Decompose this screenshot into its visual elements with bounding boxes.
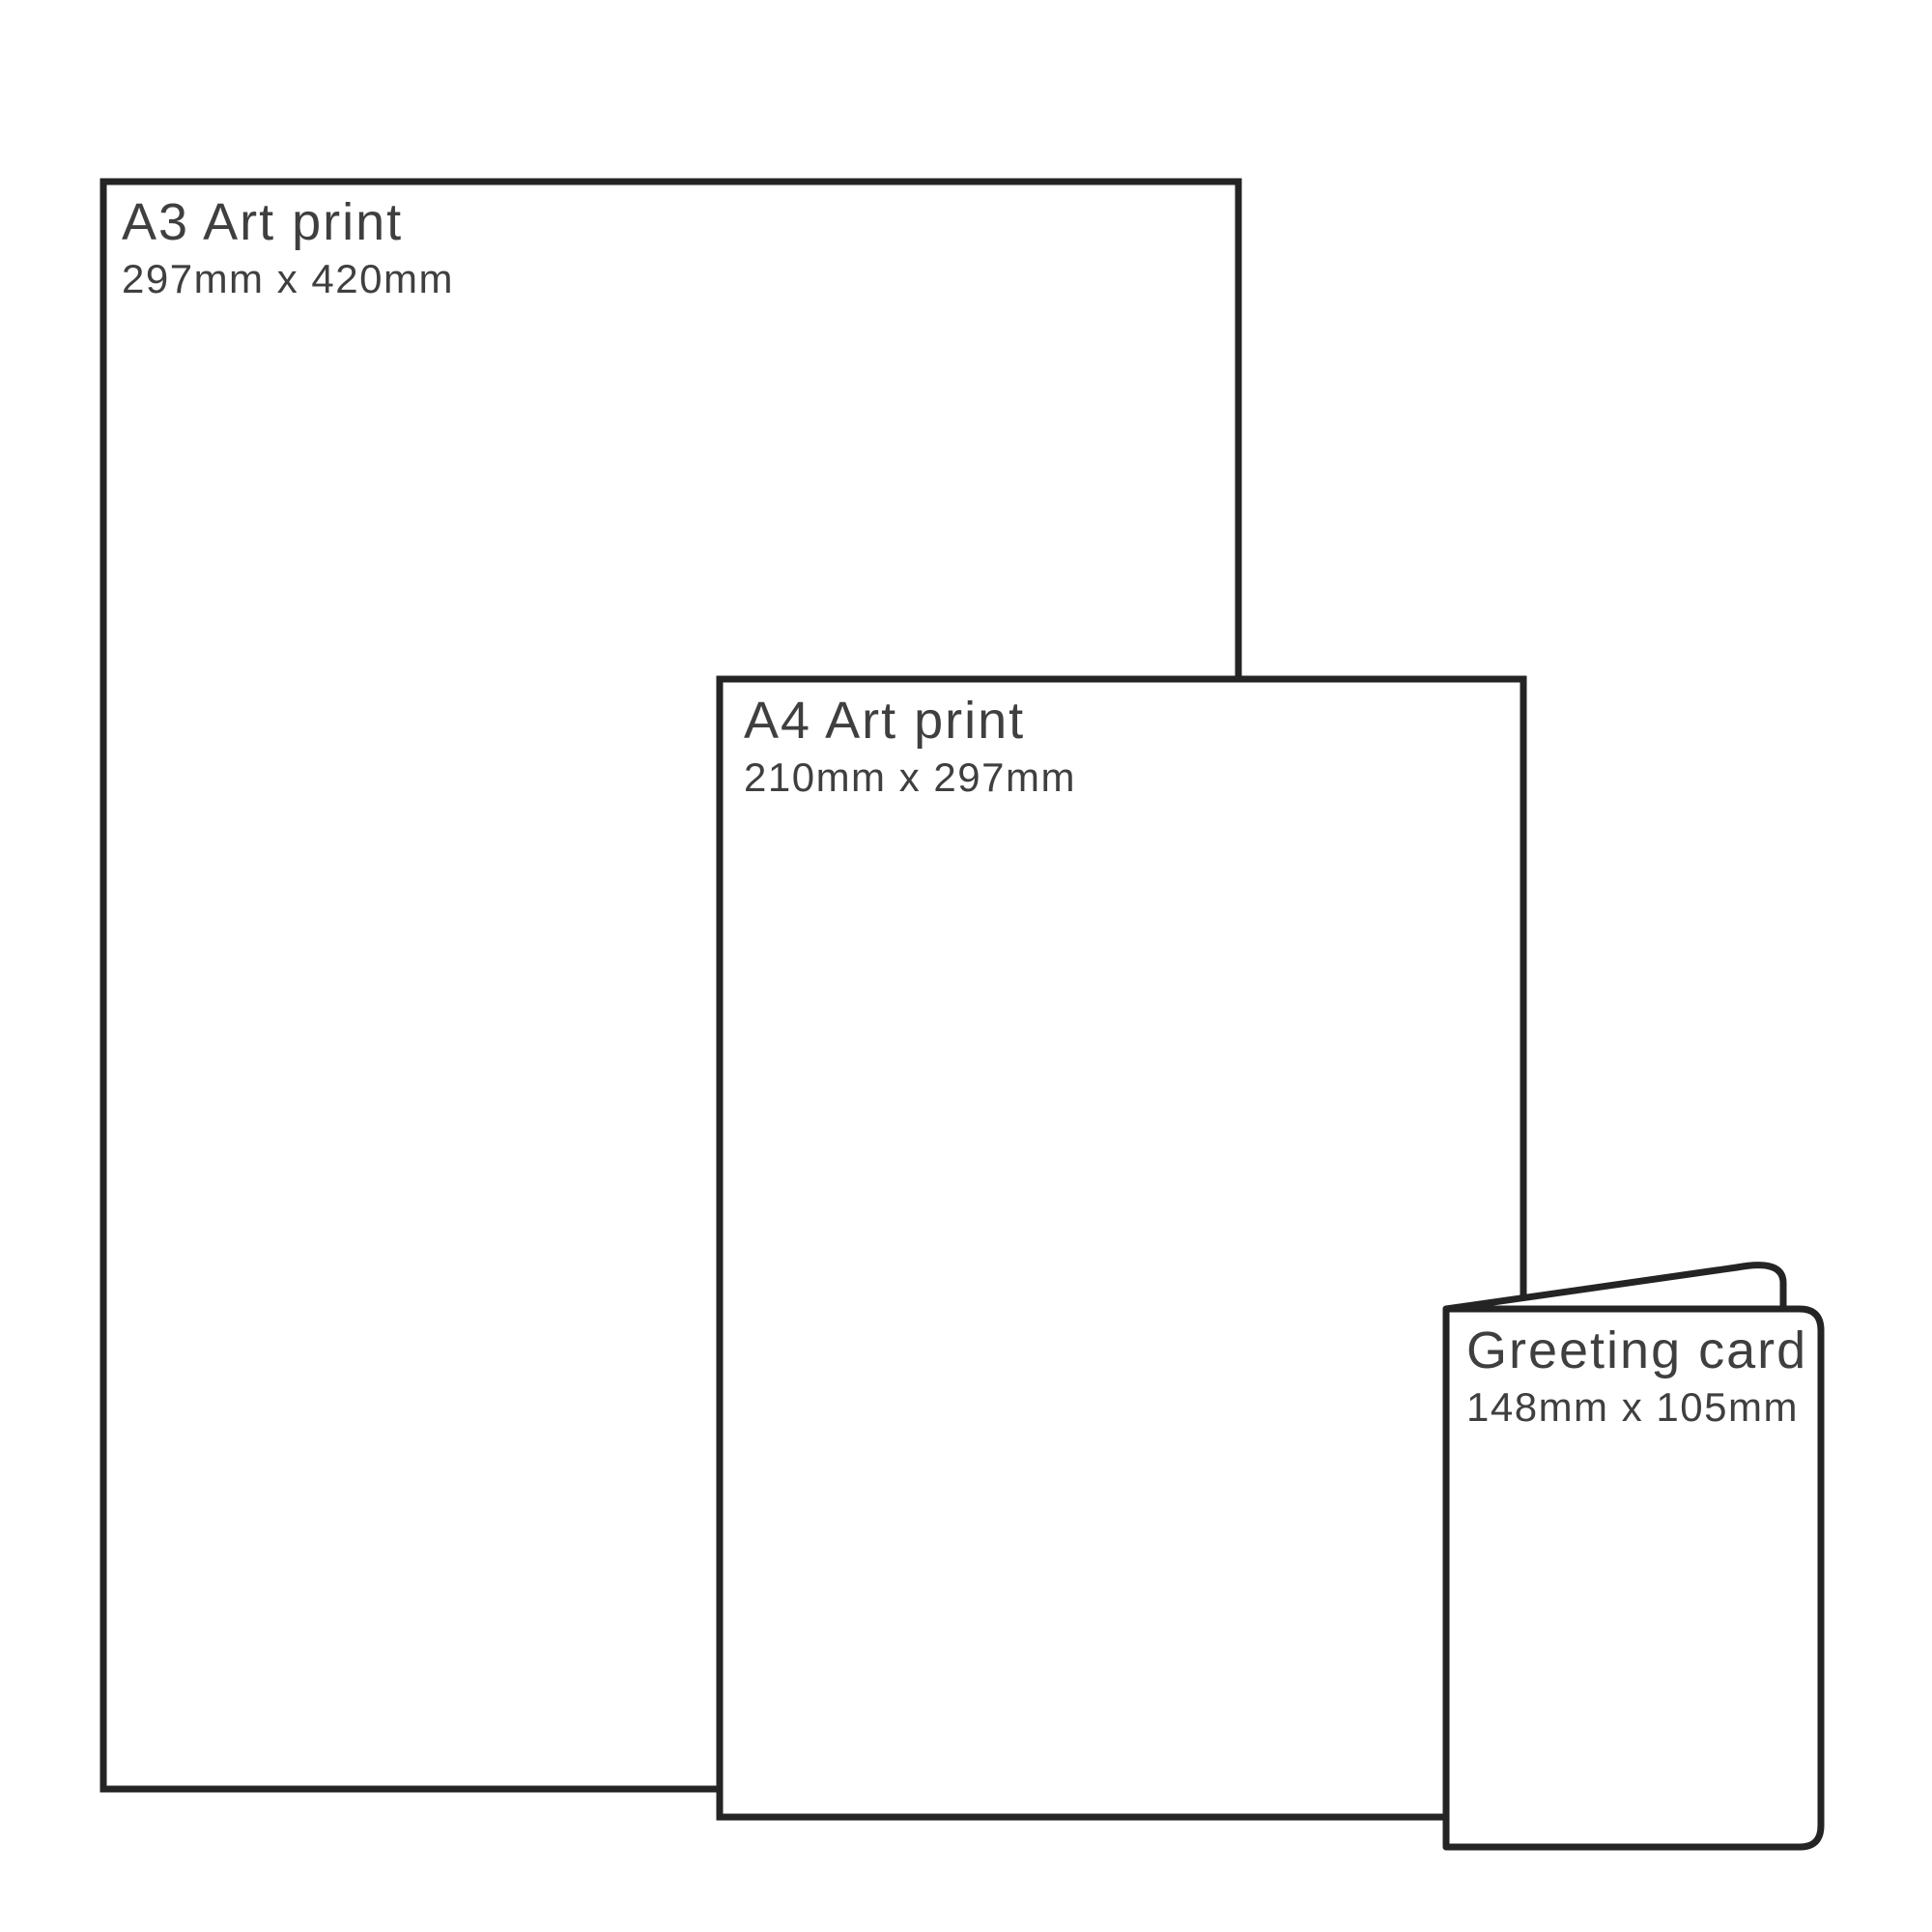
a4-print-title: A4 Art print <box>744 689 1076 753</box>
greeting-card-label: Greeting card 148mm x 105mm <box>1466 1319 1807 1433</box>
a4-print-label: A4 Art print 210mm x 297mm <box>744 689 1076 803</box>
print-size-comparison-diagram: A3 Art print 297mm x 420mm A4 Art print … <box>0 0 1932 1932</box>
a4-print-dimensions: 210mm x 297mm <box>744 753 1076 803</box>
a3-print-title: A3 Art print <box>122 190 454 254</box>
greeting-card-dimensions: 148mm x 105mm <box>1466 1382 1807 1433</box>
a3-print-label: A3 Art print 297mm x 420mm <box>122 190 454 304</box>
a3-print-dimensions: 297mm x 420mm <box>122 254 454 304</box>
a4-sheet-outline <box>720 679 1523 1817</box>
greeting-card-title: Greeting card <box>1466 1319 1807 1382</box>
